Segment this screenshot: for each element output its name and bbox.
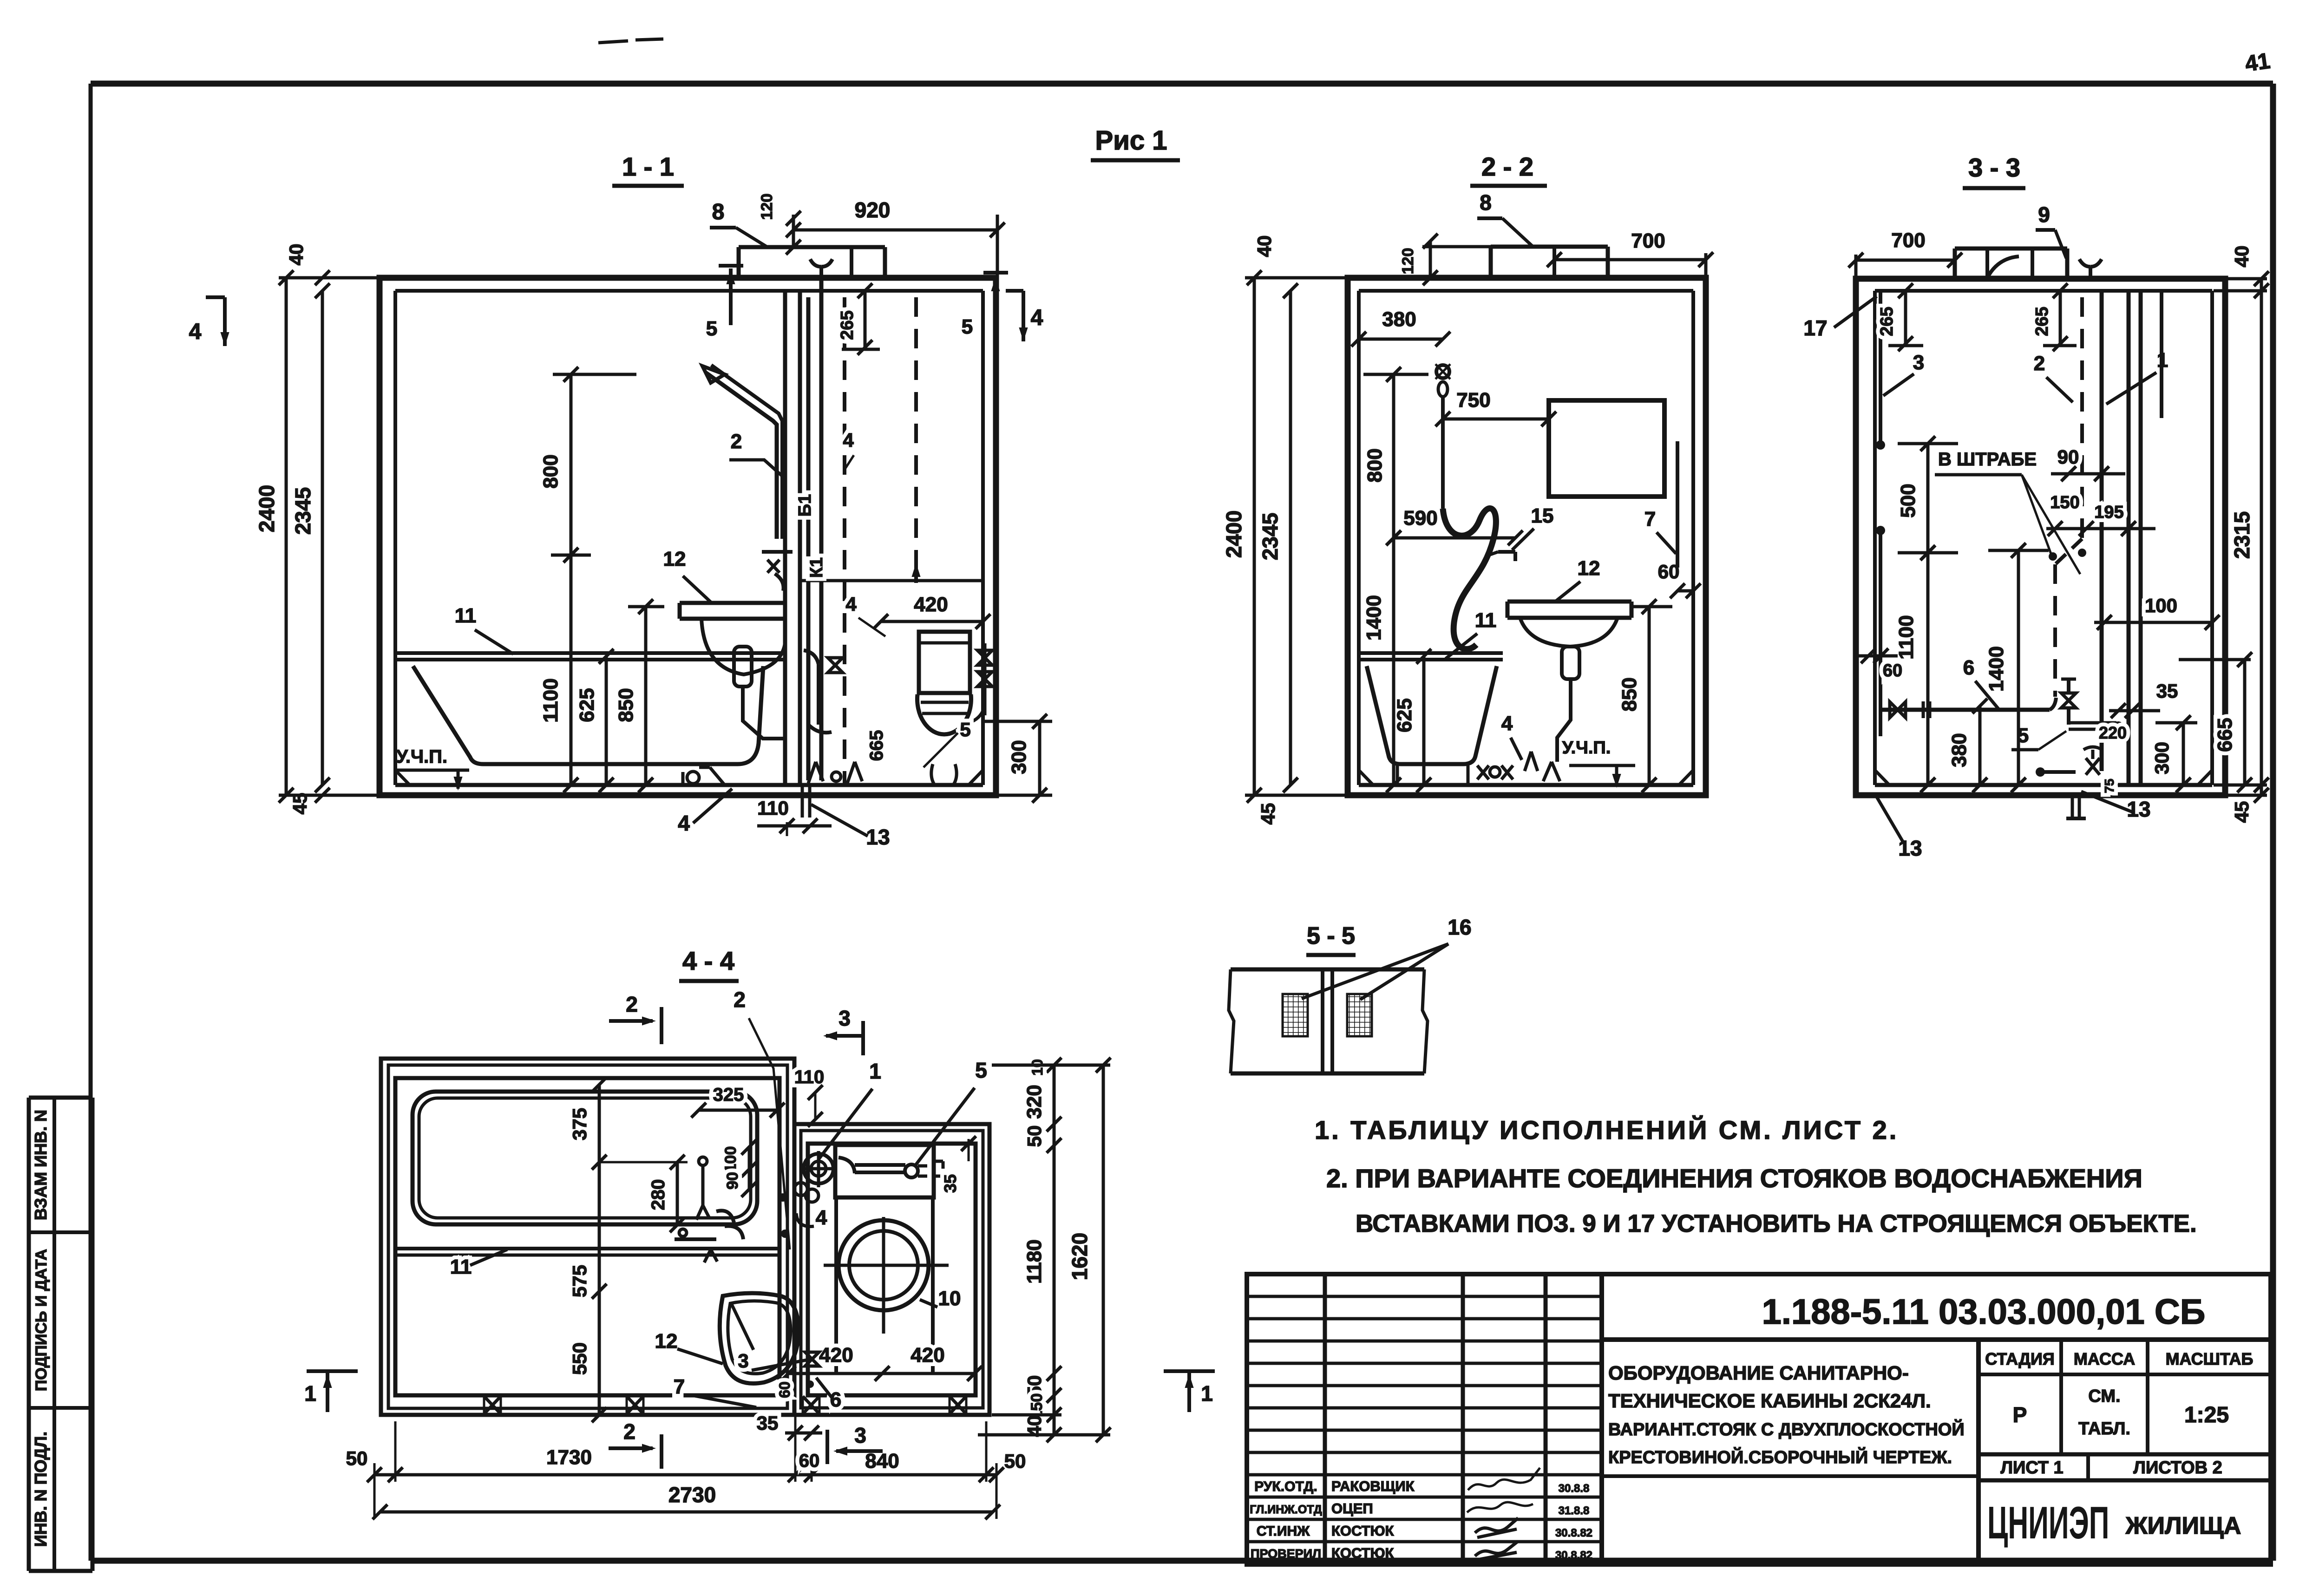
svg-text:420: 420 xyxy=(914,593,948,616)
svg-text:ПОДПИСЬ И ДАТА: ПОДПИСЬ И ДАТА xyxy=(33,1249,50,1391)
svg-text:45: 45 xyxy=(2231,801,2253,823)
svg-text:3: 3 xyxy=(839,1006,851,1030)
svg-text:850: 850 xyxy=(1618,677,1641,711)
svg-text:625: 625 xyxy=(576,688,598,722)
svg-text:ОЦЕП: ОЦЕП xyxy=(1331,1500,1373,1517)
svg-text:1730: 1730 xyxy=(546,1446,592,1469)
svg-text:380: 380 xyxy=(1382,308,1416,331)
svg-text:11: 11 xyxy=(1475,609,1497,632)
svg-text:3: 3 xyxy=(854,1423,866,1447)
svg-text:17: 17 xyxy=(1803,316,1827,340)
svg-text:КОСТЮК: КОСТЮК xyxy=(1331,1545,1394,1561)
svg-text:41: 41 xyxy=(2244,49,2272,77)
svg-text:МАСШТАБ: МАСШТАБ xyxy=(2166,1349,2254,1368)
svg-text:380: 380 xyxy=(1948,733,1971,767)
svg-text:12: 12 xyxy=(663,548,686,570)
svg-text:ВСТАВКАМИ ПОЗ. 9 И 17 УСТАНОВ: ВСТАВКАМИ ПОЗ. 9 И 17 УСТАНОВИТЬ НА СТРО… xyxy=(1356,1210,2197,1237)
svg-text:15: 15 xyxy=(1531,504,1554,527)
svg-text:5: 5 xyxy=(2018,724,2029,747)
svg-text:5 - 5: 5 - 5 xyxy=(1307,922,1355,949)
svg-text:16: 16 xyxy=(1448,915,1471,939)
svg-text:1. ТАБЛИЦУ ИСПОЛНЕНИЙ СМ. ЛИС: 1. ТАБЛИЦУ ИСПОЛНЕНИЙ СМ. ЛИСТ 2. xyxy=(1315,1115,1899,1145)
svg-text:4: 4 xyxy=(843,429,854,451)
svg-text:Рис 1: Рис 1 xyxy=(1095,125,1167,156)
svg-text:12: 12 xyxy=(1578,557,1600,580)
svg-text:800: 800 xyxy=(1363,448,1386,482)
svg-text:У.Ч.П.: У.Ч.П. xyxy=(1562,738,1611,758)
svg-text:40: 40 xyxy=(2231,246,2253,268)
svg-text:50: 50 xyxy=(1023,1125,1045,1147)
svg-text:6: 6 xyxy=(830,1388,841,1411)
svg-text:1620: 1620 xyxy=(1068,1233,1092,1280)
svg-text:2345: 2345 xyxy=(1258,513,1282,560)
svg-text:50: 50 xyxy=(1004,1450,1026,1472)
svg-text:2: 2 xyxy=(734,988,746,1012)
svg-text:575: 575 xyxy=(569,1265,590,1297)
svg-text:9: 9 xyxy=(2038,203,2050,227)
svg-text:500: 500 xyxy=(1897,484,1919,517)
svg-text:625: 625 xyxy=(1393,698,1416,732)
svg-text:В ШТРАБЕ: В ШТРАБЕ xyxy=(1938,449,2037,470)
svg-text:ТЕХНИЧЕСКОЕ КАБИНЫ 2СК24Л.: ТЕХНИЧЕСКОЕ КАБИНЫ 2СК24Л. xyxy=(1608,1390,1931,1412)
svg-text:920: 920 xyxy=(855,198,891,222)
svg-text:420: 420 xyxy=(911,1344,944,1367)
svg-text:ЛИСТ 1: ЛИСТ 1 xyxy=(2000,1458,2063,1478)
svg-text:110: 110 xyxy=(757,797,789,819)
svg-text:2. ПРИ ВАРИАНТЕ СОЕДИНЕНИЯ СТО: 2. ПРИ ВАРИАНТЕ СОЕДИНЕНИЯ СТОЯКОВ ВОДОС… xyxy=(1326,1164,2142,1193)
svg-text:2400: 2400 xyxy=(1222,510,1246,558)
svg-text:ИНВ. N ПОДЛ.: ИНВ. N ПОДЛ. xyxy=(31,1432,50,1547)
svg-text:ЖИЛИЩА: ЖИЛИЩА xyxy=(2125,1512,2241,1539)
svg-text:1:25: 1:25 xyxy=(2184,1403,2229,1427)
svg-text:550: 550 xyxy=(569,1342,590,1375)
svg-text:2345: 2345 xyxy=(291,487,315,535)
svg-text:35: 35 xyxy=(757,1412,779,1434)
svg-text:13: 13 xyxy=(2127,797,2150,821)
svg-text:2: 2 xyxy=(731,430,742,453)
svg-text:90: 90 xyxy=(2057,446,2079,468)
svg-text:1180: 1180 xyxy=(1023,1239,1046,1283)
svg-text:К1: К1 xyxy=(807,557,826,578)
svg-text:325: 325 xyxy=(713,1085,744,1105)
svg-text:У.Ч.П.: У.Ч.П. xyxy=(396,746,447,767)
svg-text:1400: 1400 xyxy=(1985,646,2008,692)
svg-text:5: 5 xyxy=(706,317,717,340)
svg-text:11: 11 xyxy=(450,1256,472,1278)
svg-text:4: 4 xyxy=(1501,712,1513,735)
svg-text:30.8.8: 30.8.8 xyxy=(1559,1482,1590,1495)
svg-text:РАКОВЩИК: РАКОВЩИК xyxy=(1331,1478,1415,1494)
svg-text:МАССА: МАССА xyxy=(2074,1349,2135,1368)
svg-text:1: 1 xyxy=(304,1381,316,1406)
svg-text:300: 300 xyxy=(2151,742,2173,774)
svg-text:ВЗАМ ИНВ. N: ВЗАМ ИНВ. N xyxy=(31,1110,50,1220)
svg-text:60: 60 xyxy=(776,1381,793,1398)
svg-text:10: 10 xyxy=(938,1287,961,1310)
svg-text:120: 120 xyxy=(758,194,776,220)
svg-text:СТАДИЯ: СТАДИЯ xyxy=(1985,1349,2055,1368)
svg-text:5: 5 xyxy=(962,315,973,338)
svg-text:СМ.: СМ. xyxy=(2088,1387,2120,1406)
svg-text:100: 100 xyxy=(722,1146,740,1173)
svg-text:40: 40 xyxy=(1253,235,1275,257)
svg-text:2400: 2400 xyxy=(255,485,279,532)
svg-text:4: 4 xyxy=(845,593,857,615)
svg-text:ЛИСТОВ 2: ЛИСТОВ 2 xyxy=(2133,1458,2222,1478)
svg-text:700: 700 xyxy=(1891,229,1925,252)
svg-text:50: 50 xyxy=(346,1447,368,1469)
svg-text:40: 40 xyxy=(285,244,307,266)
svg-text:2: 2 xyxy=(623,1419,635,1444)
svg-text:4 - 4: 4 - 4 xyxy=(682,946,734,975)
svg-text:ВАРИАНТ.СТОЯК С ДВУХПЛОСКОСТНО: ВАРИАНТ.СТОЯК С ДВУХПЛОСКОСТНОЙ xyxy=(1608,1419,1965,1439)
svg-text:300: 300 xyxy=(1008,740,1030,774)
svg-text:8: 8 xyxy=(712,200,725,224)
svg-text:3 - 3: 3 - 3 xyxy=(1968,153,2020,182)
svg-text:6: 6 xyxy=(1963,656,1974,679)
svg-text:35: 35 xyxy=(2156,680,2178,702)
svg-text:2 - 2: 2 - 2 xyxy=(1481,152,1533,181)
svg-text:1: 1 xyxy=(1201,1381,1213,1406)
svg-text:150: 150 xyxy=(2050,493,2079,512)
svg-text:1: 1 xyxy=(869,1059,881,1083)
svg-text:13: 13 xyxy=(866,825,890,849)
svg-text:665: 665 xyxy=(866,730,887,761)
svg-text:665: 665 xyxy=(2214,718,2236,752)
svg-text:Р: Р xyxy=(2013,1403,2027,1427)
svg-text:КОСТЮК: КОСТЮК xyxy=(1331,1523,1394,1539)
svg-text:2: 2 xyxy=(626,992,638,1016)
svg-text:1: 1 xyxy=(2157,349,2168,372)
svg-text:220: 220 xyxy=(2099,723,2127,742)
svg-text:4: 4 xyxy=(189,320,202,344)
svg-text:ГЛ.ИНЖ.ОТД: ГЛ.ИНЖ.ОТД xyxy=(1250,1503,1322,1516)
svg-text:800: 800 xyxy=(539,454,562,488)
svg-text:420: 420 xyxy=(819,1344,853,1367)
svg-text:700: 700 xyxy=(1631,229,1665,252)
svg-text:8: 8 xyxy=(1480,190,1492,215)
svg-text:2730: 2730 xyxy=(668,1483,716,1507)
svg-text:60: 60 xyxy=(799,1451,820,1471)
svg-text:850: 850 xyxy=(615,688,637,722)
svg-text:1100: 1100 xyxy=(539,678,562,722)
svg-text:35: 35 xyxy=(941,1174,960,1193)
svg-text:5: 5 xyxy=(960,719,970,740)
svg-text:5: 5 xyxy=(975,1058,987,1082)
svg-text:195: 195 xyxy=(2094,503,2123,522)
svg-text:265: 265 xyxy=(2032,307,2052,336)
svg-text:320: 320 xyxy=(1023,1085,1046,1119)
svg-text:590: 590 xyxy=(1403,507,1437,530)
svg-text:РУК.ОТД.: РУК.ОТД. xyxy=(1254,1479,1317,1494)
svg-text:120: 120 xyxy=(1399,248,1417,275)
svg-text:4: 4 xyxy=(816,1206,827,1229)
svg-text:1400: 1400 xyxy=(1363,595,1385,641)
svg-text:ПРОВЕРИЛ: ПРОВЕРИЛ xyxy=(1251,1547,1321,1561)
svg-text:375: 375 xyxy=(569,1108,590,1140)
svg-text:ТАБЛ.: ТАБЛ. xyxy=(2078,1419,2130,1439)
svg-text:2: 2 xyxy=(2034,352,2045,375)
svg-text:КРЕСТОВИНОЙ.СБОРОЧНЫЙ ЧЕРТЕЖ.: КРЕСТОВИНОЙ.СБОРОЧНЫЙ ЧЕРТЕЖ. xyxy=(1608,1446,1952,1467)
svg-text:30.8.82: 30.8.82 xyxy=(1555,1549,1592,1562)
svg-text:2315: 2315 xyxy=(2230,511,2254,559)
svg-text:100: 100 xyxy=(2145,595,2177,616)
svg-text:840: 840 xyxy=(865,1450,899,1472)
svg-text:7: 7 xyxy=(674,1375,685,1398)
svg-text:110: 110 xyxy=(794,1067,825,1087)
svg-text:1.188-5.11 03.03.000,01 СБ: 1.188-5.11 03.03.000,01 СБ xyxy=(1762,1292,2206,1332)
svg-text:4: 4 xyxy=(1031,306,1043,330)
svg-text:1100: 1100 xyxy=(1895,615,1918,659)
svg-text:750: 750 xyxy=(1456,389,1490,412)
svg-text:31.8.8: 31.8.8 xyxy=(1559,1504,1590,1517)
svg-text:265: 265 xyxy=(1877,307,1897,336)
svg-text:30.8.82: 30.8.82 xyxy=(1555,1527,1592,1539)
svg-text:3: 3 xyxy=(738,1350,748,1372)
svg-text:265: 265 xyxy=(838,310,857,340)
svg-text:ЦНИИЭП: ЦНИИЭП xyxy=(1987,1498,2109,1548)
svg-text:75: 75 xyxy=(2102,778,2116,793)
svg-text:Б1: Б1 xyxy=(795,494,815,517)
svg-text:280: 280 xyxy=(648,1179,668,1210)
svg-text:12: 12 xyxy=(655,1330,678,1353)
svg-text:4: 4 xyxy=(678,811,690,835)
svg-text:10: 10 xyxy=(1029,1059,1046,1076)
svg-text:7: 7 xyxy=(1644,508,1656,530)
svg-text:3: 3 xyxy=(1913,351,1924,374)
svg-text:1 - 1: 1 - 1 xyxy=(622,152,674,181)
svg-text:ОБОРУДОВАНИЕ САНИТАРНО-: ОБОРУДОВАНИЕ САНИТАРНО- xyxy=(1608,1362,1909,1384)
svg-text:45: 45 xyxy=(1257,803,1279,825)
svg-text:СТ.ИНЖ: СТ.ИНЖ xyxy=(1257,1524,1310,1539)
svg-text:90: 90 xyxy=(724,1172,741,1190)
svg-text:11: 11 xyxy=(455,604,477,627)
svg-text:60: 60 xyxy=(1883,661,1902,680)
